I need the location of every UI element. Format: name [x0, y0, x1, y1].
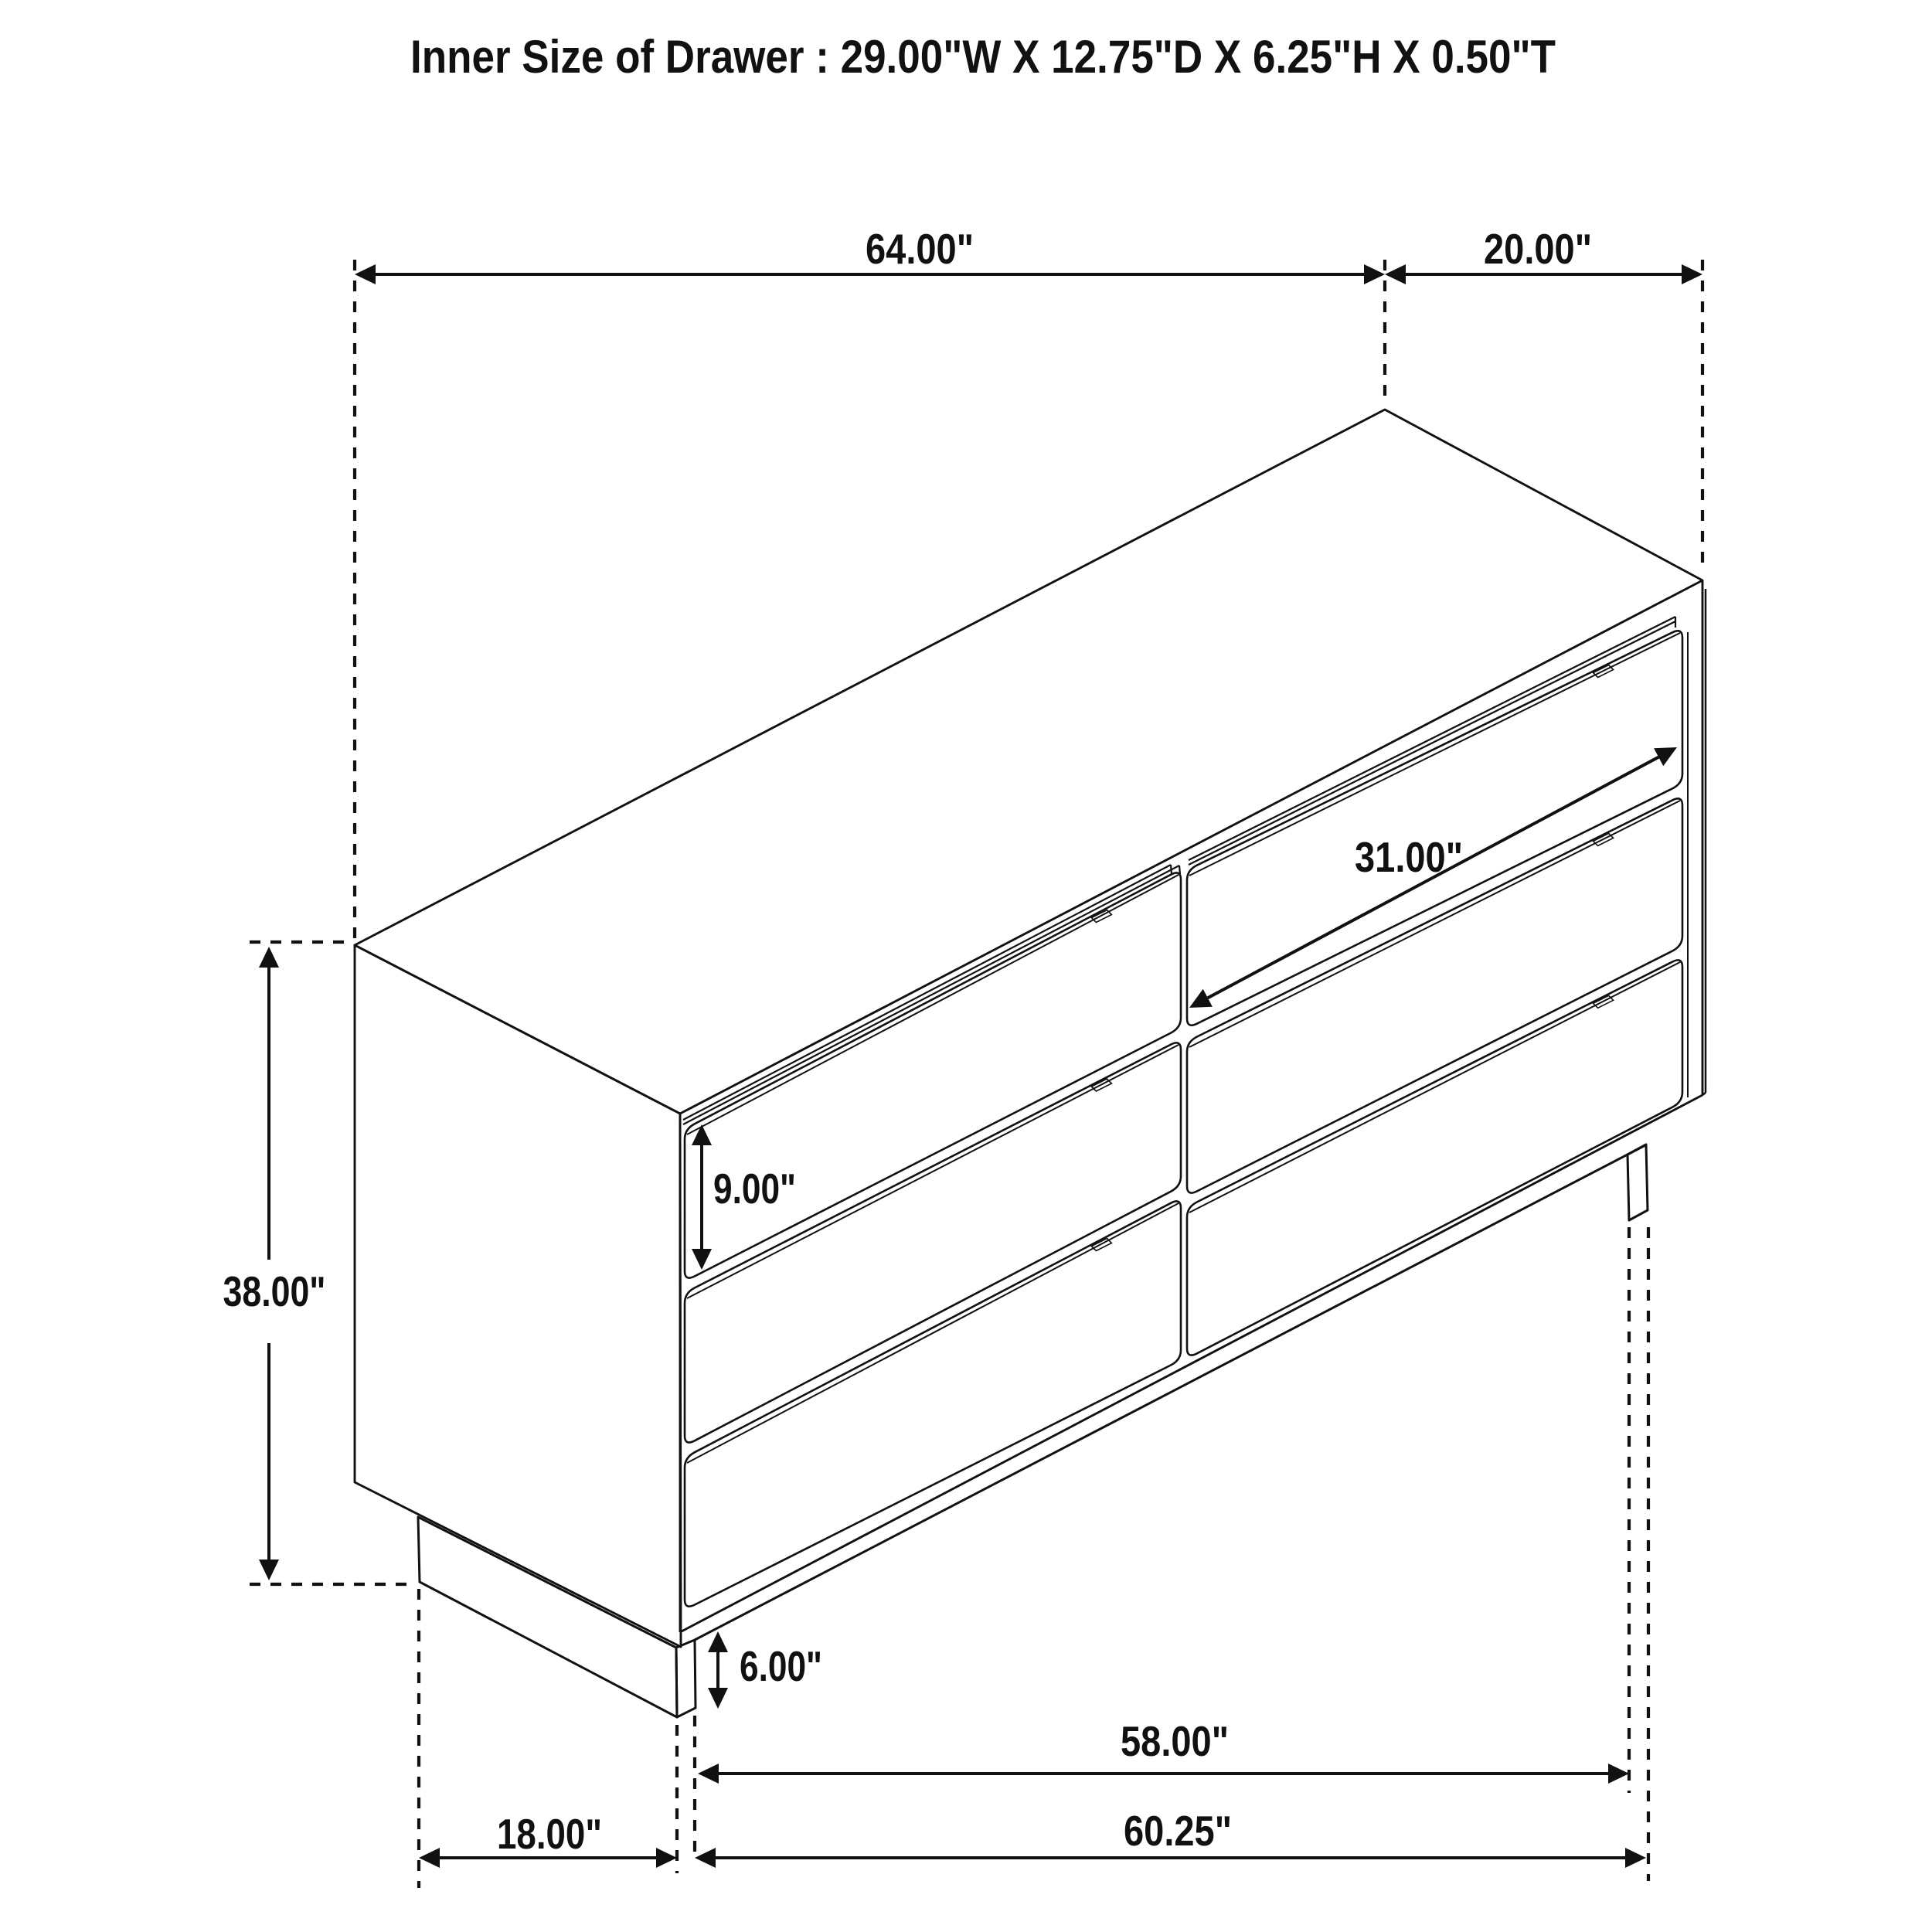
svg-text:38.00": 38.00"	[223, 1267, 326, 1315]
svg-text:9.00": 9.00"	[713, 1165, 796, 1213]
svg-text:20.00": 20.00"	[1484, 225, 1592, 273]
svg-text:58.00": 58.00"	[1121, 1717, 1229, 1765]
svg-text:18.00": 18.00"	[497, 1810, 602, 1858]
svg-text:6.00": 6.00"	[740, 1642, 822, 1690]
svg-text:31.00": 31.00"	[1355, 833, 1463, 881]
svg-text:64.00": 64.00"	[866, 225, 974, 273]
svg-text:Inner Size of Drawer : 29.00"W: Inner Size of Drawer : 29.00"W X 12.75"D…	[410, 31, 1556, 83]
svg-text:60.25": 60.25"	[1124, 1807, 1232, 1855]
